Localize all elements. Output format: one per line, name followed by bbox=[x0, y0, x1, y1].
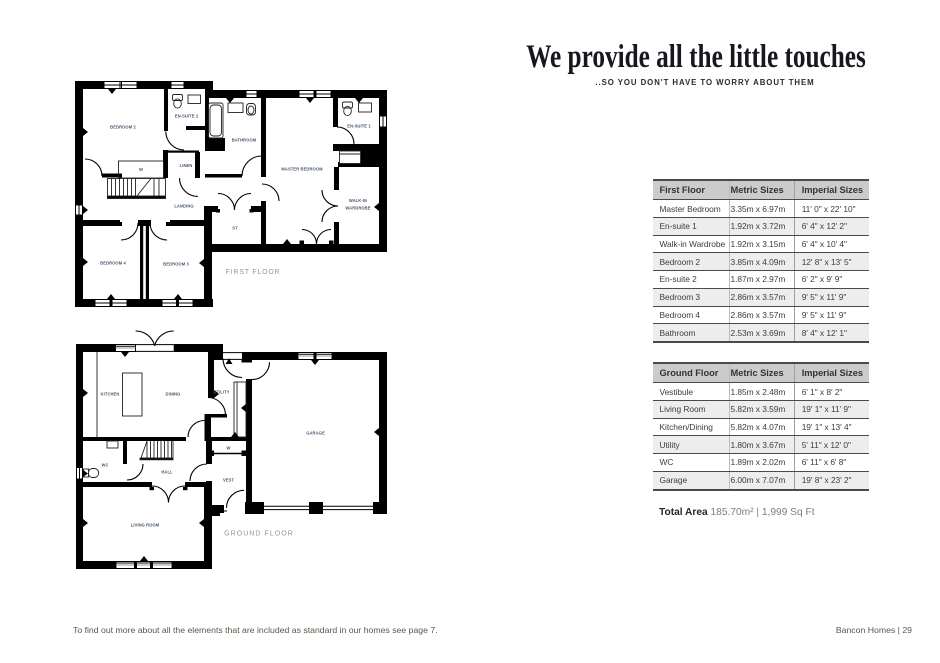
svg-text:DINING: DINING bbox=[166, 392, 181, 397]
svg-text:LINEN: LINEN bbox=[180, 163, 193, 168]
svg-text:GROUND FLOOR: GROUND FLOOR bbox=[224, 531, 294, 538]
svg-text:FIRST FLOOR: FIRST FLOOR bbox=[226, 269, 281, 276]
svg-text:W: W bbox=[139, 167, 143, 172]
svg-text:WARDROBE: WARDROBE bbox=[345, 206, 370, 211]
svg-text:W: W bbox=[227, 446, 231, 451]
svg-text:WALK-IN: WALK-IN bbox=[349, 198, 367, 203]
svg-text:BEDROOM 3: BEDROOM 3 bbox=[163, 262, 189, 267]
svg-text:LIVING ROOM: LIVING ROOM bbox=[131, 523, 160, 528]
svg-text:MASTER BEDROOM: MASTER BEDROOM bbox=[281, 167, 323, 172]
svg-text:ST: ST bbox=[232, 226, 238, 231]
svg-text:UTILITY: UTILITY bbox=[213, 390, 229, 395]
svg-text:WC: WC bbox=[101, 463, 108, 468]
svg-text:LANDING: LANDING bbox=[174, 204, 193, 209]
svg-text:KITCHEN: KITCHEN bbox=[101, 392, 120, 397]
svg-text:EN-SUITE 1: EN-SUITE 1 bbox=[347, 124, 371, 129]
svg-text:BATHROOM: BATHROOM bbox=[232, 138, 257, 143]
svg-text:BEDROOM 2: BEDROOM 2 bbox=[110, 125, 136, 130]
svg-text:GARAGE: GARAGE bbox=[306, 431, 325, 436]
svg-text:VEST: VEST bbox=[223, 478, 234, 483]
svg-text:HALL: HALL bbox=[161, 470, 173, 475]
svg-text:EN-SUITE 2: EN-SUITE 2 bbox=[175, 114, 199, 119]
svg-text:BEDROOM 4: BEDROOM 4 bbox=[100, 261, 126, 266]
